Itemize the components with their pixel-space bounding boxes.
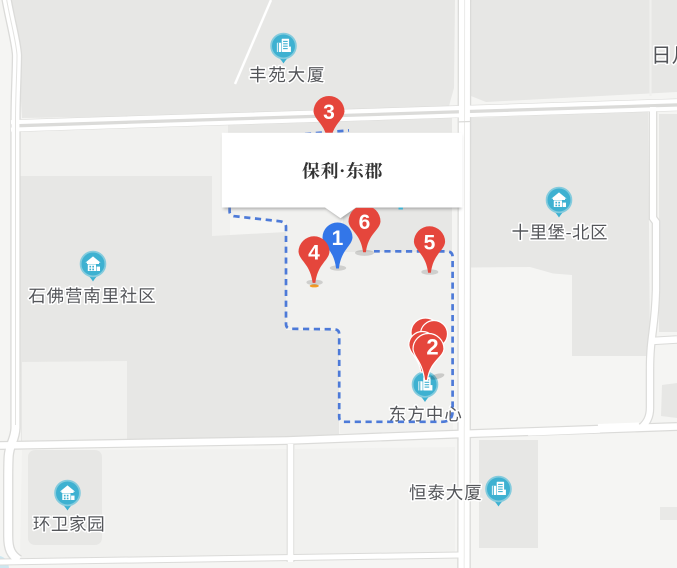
svg-text:2: 2 — [426, 335, 438, 360]
svg-text:4: 4 — [308, 241, 320, 264]
svg-text:5: 5 — [424, 232, 436, 255]
svg-text:6: 6 — [359, 211, 371, 234]
svg-text:3: 3 — [323, 101, 335, 124]
svg-text:1: 1 — [332, 227, 344, 250]
